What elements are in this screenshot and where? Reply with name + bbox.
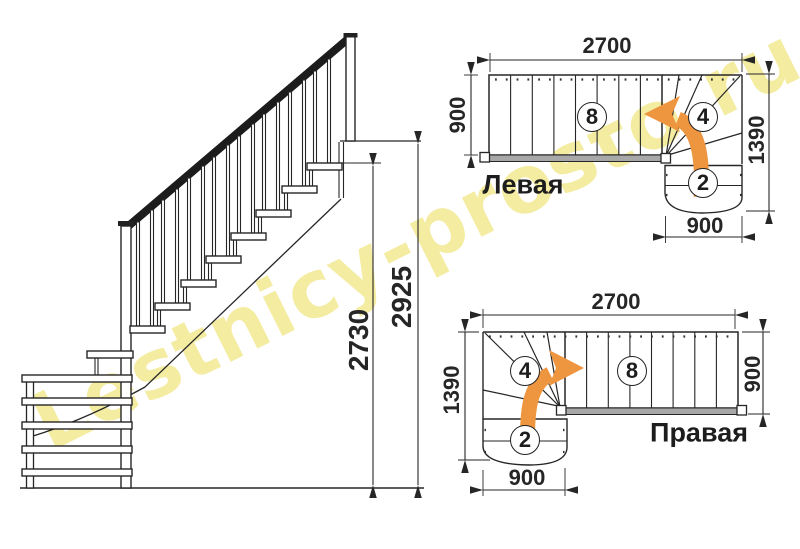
plan-left-view bbox=[464, 53, 775, 243]
newel-square bbox=[661, 154, 671, 164]
elevation-dim-total-height: 2925 bbox=[386, 266, 418, 328]
plan-right-label: Правая bbox=[650, 418, 748, 449]
stringer-bar bbox=[489, 155, 662, 162]
newel-square bbox=[557, 406, 567, 416]
step-count-circle-straight: 8 bbox=[577, 102, 607, 132]
elevation-view bbox=[20, 33, 424, 488]
step-count-circle-winder: 4 bbox=[688, 102, 718, 132]
tread-lines bbox=[587, 332, 717, 408]
step-count-circle-lower: 2 bbox=[688, 168, 718, 198]
winder-center-post-cap bbox=[118, 221, 134, 226]
elevation-dim-flight-height: 2730 bbox=[343, 309, 375, 371]
step-count-circle-straight: 8 bbox=[617, 356, 647, 386]
top-newel-post bbox=[346, 36, 355, 141]
plan-left-dim-left: 900 bbox=[445, 97, 471, 134]
winder-treads bbox=[22, 351, 133, 476]
stringer-bar bbox=[565, 408, 738, 415]
plan-right-dim-lines bbox=[458, 309, 770, 496]
plan-right-dim-right: 900 bbox=[740, 356, 766, 393]
plan-right-view bbox=[458, 309, 770, 496]
stair-drawing-canvas: Lestnicy-prosto.ru bbox=[0, 0, 800, 549]
plan-left-dim-right: 1390 bbox=[744, 116, 770, 165]
plan-right-dim-top: 2700 bbox=[592, 289, 641, 315]
plan-right-dim-bottom: 900 bbox=[509, 465, 546, 491]
plan-left-dim-bottom: 900 bbox=[687, 213, 724, 239]
newel-square bbox=[480, 153, 490, 163]
plan-right-dim-left: 1390 bbox=[439, 366, 465, 415]
plan-left-dim-top: 2700 bbox=[583, 33, 632, 59]
top-newel-cap bbox=[344, 33, 358, 38]
tread-lines bbox=[511, 75, 641, 155]
newel-square bbox=[737, 406, 747, 416]
plan-left-label: Левая bbox=[483, 170, 564, 201]
step-count-circle-winder: 4 bbox=[510, 356, 540, 386]
step-count-circle-lower: 2 bbox=[510, 425, 540, 455]
direction-arrow-head bbox=[549, 350, 584, 386]
